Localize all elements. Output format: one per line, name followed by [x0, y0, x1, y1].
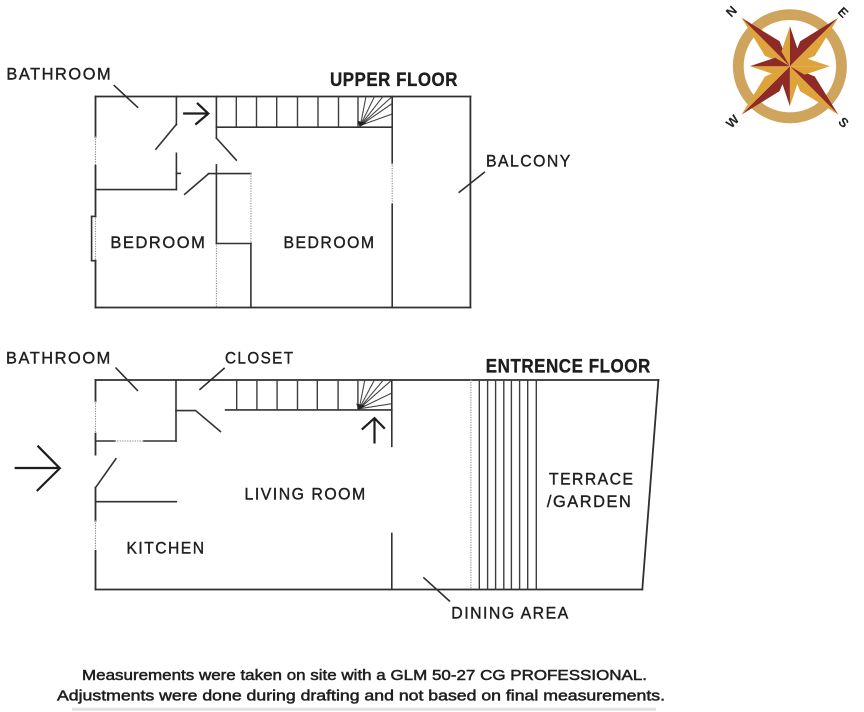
svg-text:/GARDEN: /GARDEN [547, 492, 633, 511]
svg-text:UPPER FLOOR: UPPER FLOOR [330, 70, 458, 91]
svg-text:W: W [723, 111, 743, 131]
svg-text:Adjustments were done during d: Adjustments were done during drafting an… [57, 689, 665, 705]
svg-text:BALCONY: BALCONY [486, 152, 572, 171]
svg-text:DINING AREA: DINING AREA [451, 604, 569, 623]
svg-text:BATHROOM: BATHROOM [6, 64, 112, 83]
svg-text:KITCHEN: KITCHEN [127, 539, 206, 558]
svg-text:CLOSET: CLOSET [225, 348, 295, 367]
svg-text:N: N [723, 3, 740, 20]
svg-text:BEDROOM: BEDROOM [284, 233, 376, 252]
svg-text:BEDROOM: BEDROOM [110, 233, 206, 252]
svg-text:ENTRENCE FLOOR: ENTRENCE FLOOR [486, 357, 651, 378]
svg-text:LIVING ROOM: LIVING ROOM [245, 485, 367, 504]
svg-text:BATHROOM: BATHROOM [6, 348, 112, 367]
svg-text:TERRACE: TERRACE [549, 470, 634, 489]
svg-text:Measurements were taken on sit: Measurements were taken on site with a G… [82, 668, 647, 684]
svg-text:S: S [835, 114, 852, 131]
